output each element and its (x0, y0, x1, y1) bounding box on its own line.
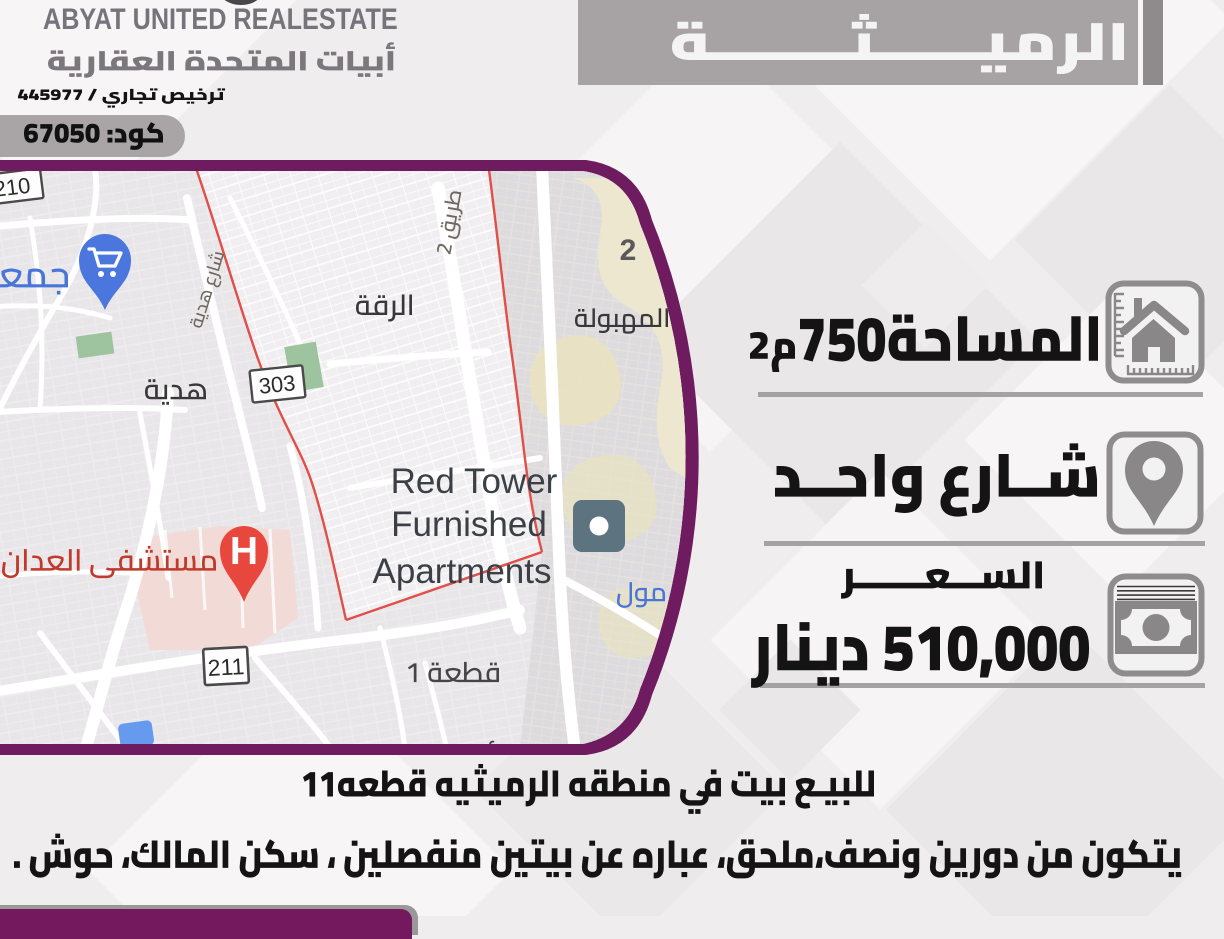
svg-text:211: 211 (207, 653, 245, 681)
svg-text:Red Tower: Red Tower (391, 462, 558, 501)
svg-text:2: 2 (620, 234, 637, 267)
svg-text:Apartments: Apartments (373, 552, 552, 591)
svg-text:303: 303 (257, 370, 296, 399)
svg-text:Furnished: Furnished (391, 505, 547, 544)
svg-text:210: 210 (0, 173, 32, 202)
svg-text:H: H (230, 530, 258, 573)
